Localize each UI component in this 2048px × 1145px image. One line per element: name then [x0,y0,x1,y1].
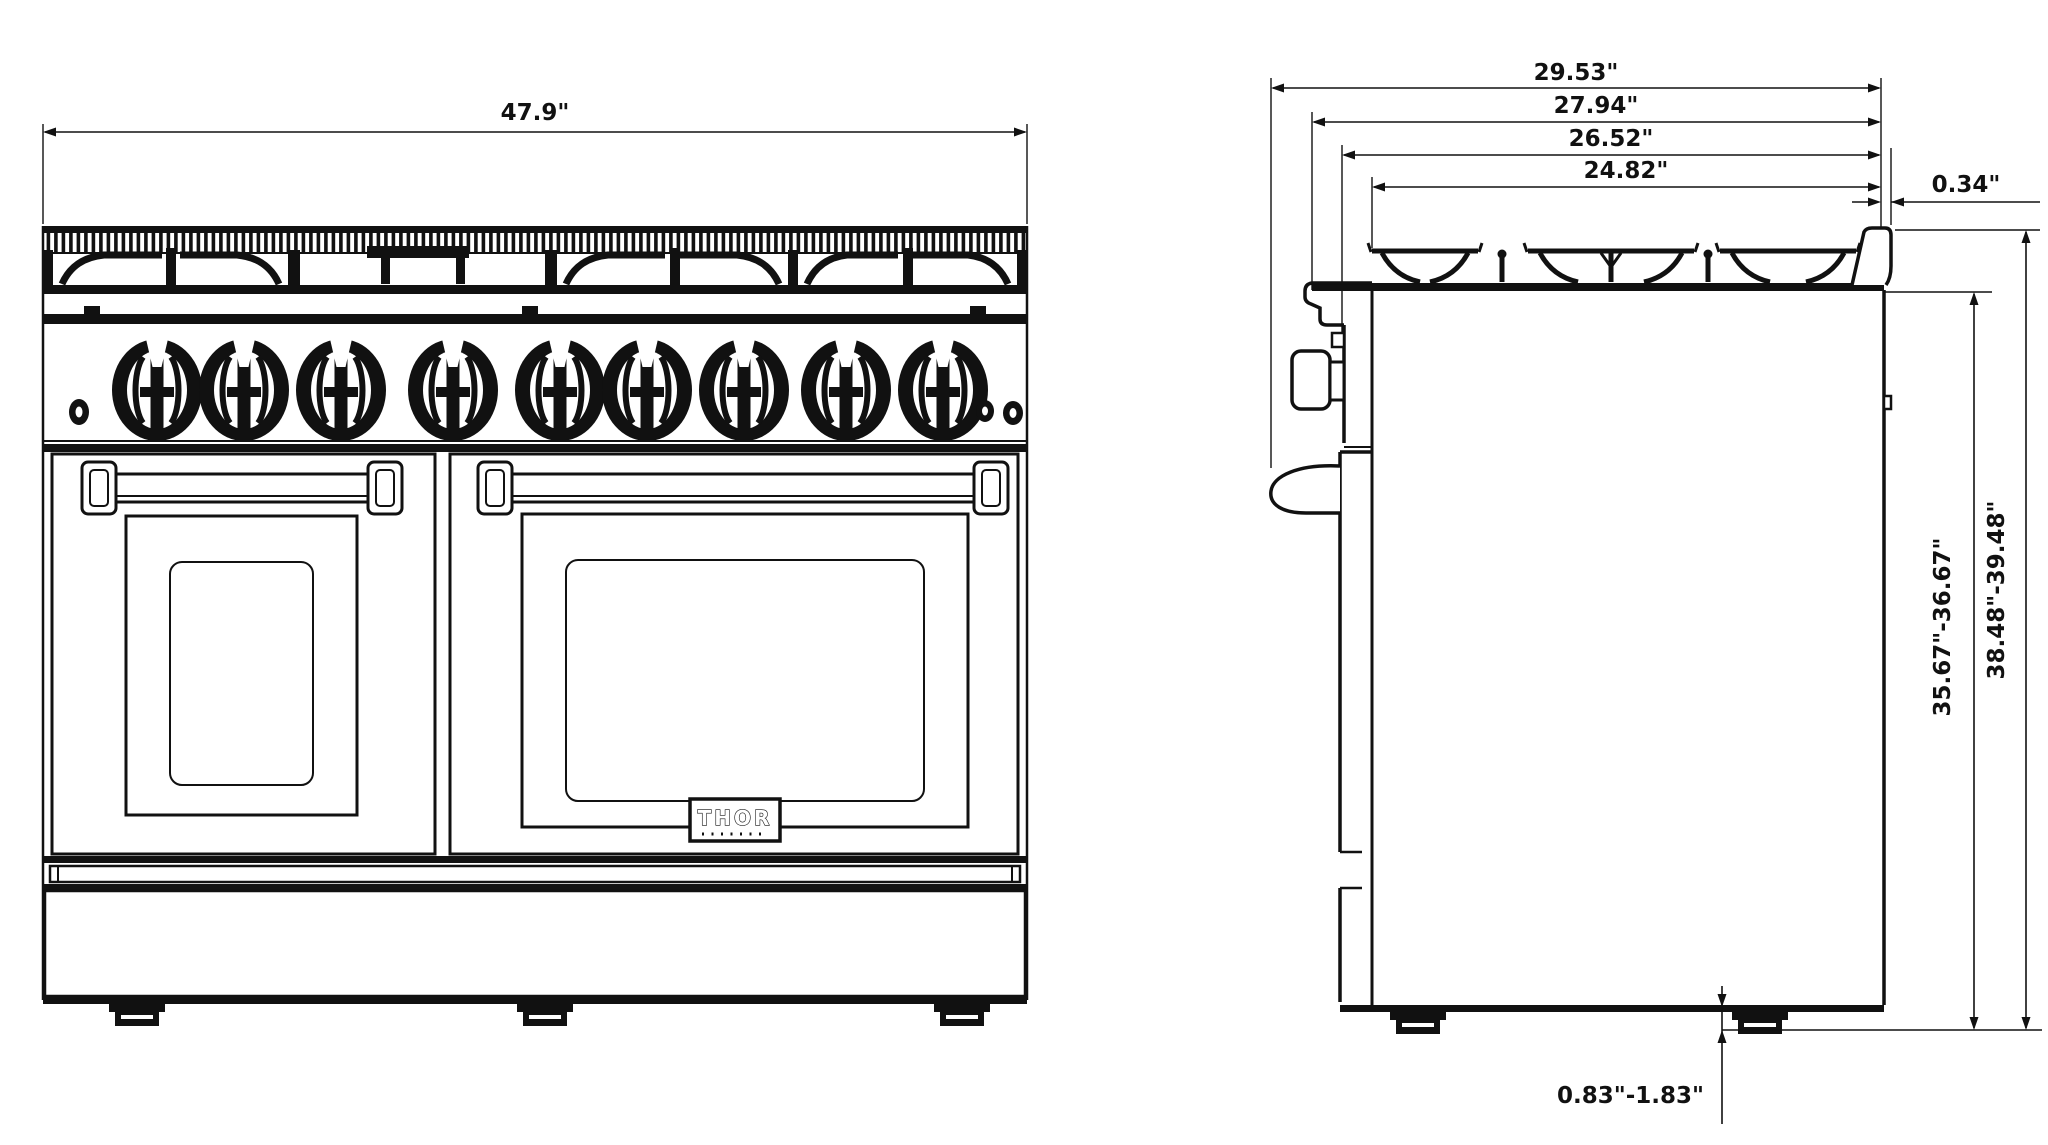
control-knob [408,339,498,441]
control-knob [602,339,692,441]
knob-mount-step [1332,333,1344,347]
knob-profile [1292,351,1330,409]
cooktop-front-edge [43,285,1027,294]
cooktop-grate-band [43,226,1027,254]
storage-drawer-front [45,891,1025,996]
control-knob [699,339,789,441]
leveling-foot [517,1004,573,1026]
leg-height-label: 0.83"-1.83" [1557,1083,1704,1109]
depth-door-label: 26.52" [1569,126,1654,152]
drawer-trim-strip [50,866,1020,882]
control-knob [112,339,202,441]
body-bottom-rail [43,996,1027,1004]
control-panel-top-rail [43,314,1027,324]
indicator-light [1003,401,1023,425]
control-knob [296,339,386,441]
back-lip-offset-label: 0.34" [1932,172,2001,198]
depth-overhang-label: 27.94" [1554,93,1639,119]
side-bottom-rail [1340,1005,1884,1012]
knob-stem-profile [1330,362,1344,400]
indicator-light [976,400,994,422]
technical-drawing-page: 47.9" [0,0,2048,1145]
height-overall-label: 38.48"-39.48" [1984,500,2010,679]
range-dimension-diagram: 47.9" [0,0,2048,1145]
thor-logo-badge: THOR [690,799,780,841]
control-knob [515,339,605,441]
height-to-cooktop-label: 35.67"-36.67" [1930,537,1956,716]
control-knob [801,339,891,441]
door-bottom-rail [43,856,1027,863]
door-top-rail [43,444,1027,452]
back-face-fitting [1884,396,1891,409]
control-knob [199,339,289,441]
leveling-foot [1390,1012,1446,1034]
cooktop-surface [1312,283,1884,291]
indicator-light [69,399,89,425]
leveling-foot [934,1004,990,1026]
brand-logo-text: THOR [698,806,773,830]
leveling-foot [109,1004,165,1026]
control-knob [898,339,988,441]
depth-body-label: 24.82" [1584,158,1669,184]
depth-overall-label: 29.53" [1534,60,1619,86]
front-width-label: 47.9" [501,100,570,126]
